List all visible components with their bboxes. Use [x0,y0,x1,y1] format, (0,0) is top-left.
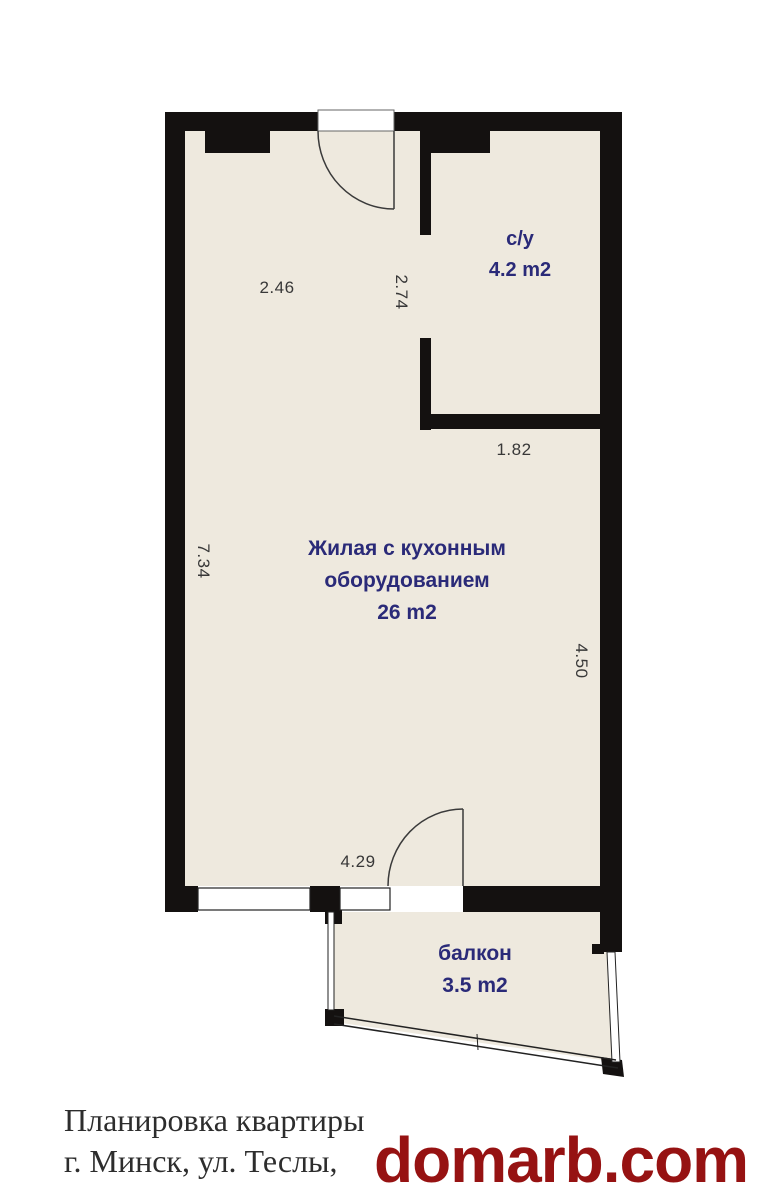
dimension-bathroom-width: 1.82 [496,440,531,460]
room-label-balcony: балкон 3.5 m2 [438,938,512,1002]
room-balcony-name: балкон [438,938,512,970]
dimension-hall-depth: 2.74 [391,274,411,309]
watermark-text: domarb.com [374,1128,748,1192]
room-bathroom-area: 4.2 m2 [489,255,551,286]
page: 2.46 2.74 1.82 7.34 4.50 4.29 с/у 4.2 m2… [0,0,765,1200]
room-living-area: 26 m2 [308,597,506,629]
window-balcony-door-side [340,888,390,910]
caption-line1: Планировка квартиры [64,1102,365,1139]
dimension-right-wall-height: 4.50 [571,643,591,678]
dimension-hall-width: 2.46 [259,278,294,298]
room-label-bathroom: с/у 4.2 m2 [489,224,551,286]
dimension-left-wall-height: 7.34 [193,543,213,578]
room-balcony-area: 3.5 m2 [438,970,512,1002]
caption-line2: г. Минск, ул. Теслы, [64,1143,338,1180]
room-bathroom-name: с/у [489,224,551,255]
entrance-threshold [318,110,394,131]
room-living-name-line1: Жилая с кухонным [308,533,506,565]
balcony-left-glazing [328,912,334,1010]
room-living-name-line2: оборудованием [308,565,506,597]
dimension-bottom-wall-width: 4.29 [340,852,375,872]
room-label-living: Жилая с кухонным оборудованием 26 m2 [308,533,506,629]
window-bottom-left [198,888,310,910]
